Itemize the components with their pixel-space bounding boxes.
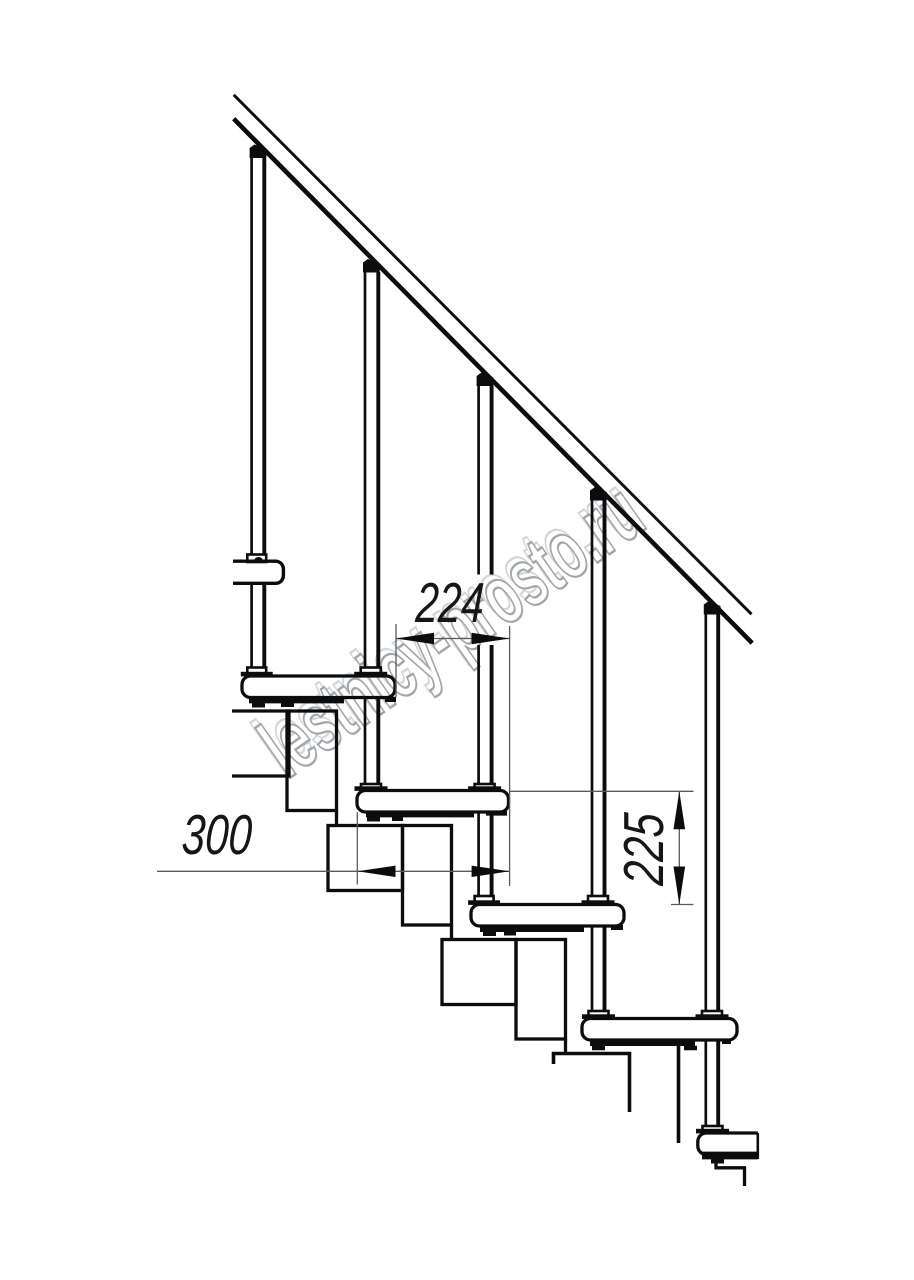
- svg-text:300: 300: [180, 803, 254, 866]
- svg-text:225: 225: [612, 811, 675, 887]
- svg-text:224: 224: [414, 571, 486, 634]
